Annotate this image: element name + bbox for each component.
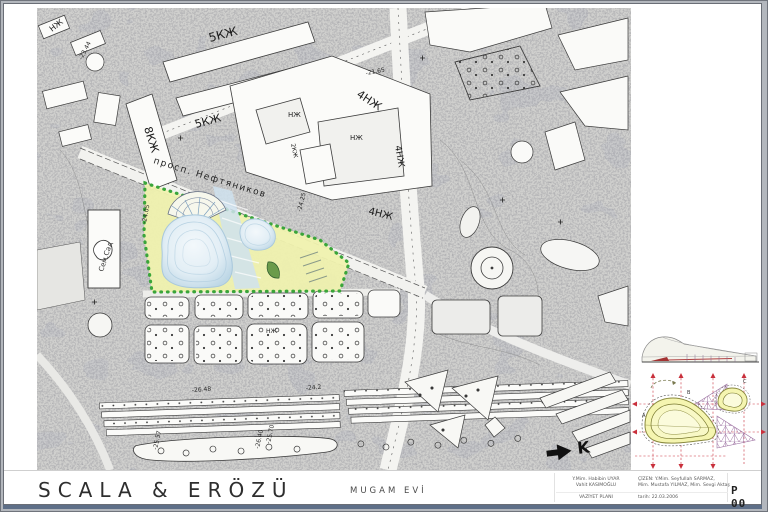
svg-text:НЖ: НЖ	[266, 328, 278, 335]
drawing-sheet: Сем.Сад	[3, 3, 762, 505]
credits-right: ÇİZEN: Y.Mim. Seyfullah SARMAZ, Mim. Mus…	[638, 477, 738, 489]
project-title: MUGAM EVİ	[350, 486, 427, 496]
credit-line: Mim. Mustafa YILMAZ, Mim. Sevgi Aktaş	[638, 483, 738, 489]
sheet-number: P 00	[731, 484, 761, 510]
svg-text:НЖ: НЖ	[288, 111, 301, 119]
diagram-letter-a: A	[642, 413, 646, 419]
title-block: SCALA & ERÖZÜ MUGAM EVİ Y.Mim. Habibin U…	[4, 470, 761, 504]
credit-line: Vahit KASIMOĞLU	[560, 483, 632, 489]
elevation-sketch	[637, 331, 763, 371]
diagram-letter-c: C	[743, 379, 747, 385]
svg-text:НЖ: НЖ	[350, 134, 363, 142]
svg-text:-26.48: -26.48	[192, 386, 212, 394]
drawing-type: VAZİYET PLANI	[560, 495, 632, 500]
credits-left: Y.Mim. Habibin UYAR Vahit KASIMOĞLU	[560, 477, 632, 489]
diagram-letter-b: B	[687, 390, 691, 396]
titleblock-divider	[554, 473, 555, 502]
site-plan-map: Сем.Сад	[37, 8, 631, 470]
titleblock-hline	[556, 492, 728, 493]
drawing-date: tarih: 22.03.2006	[638, 495, 678, 500]
firm-name: SCALA & ERÖZÜ	[38, 478, 294, 502]
svg-text:-24.2: -24.2	[306, 384, 322, 392]
concept-plan-diagram: A B C	[631, 370, 767, 470]
